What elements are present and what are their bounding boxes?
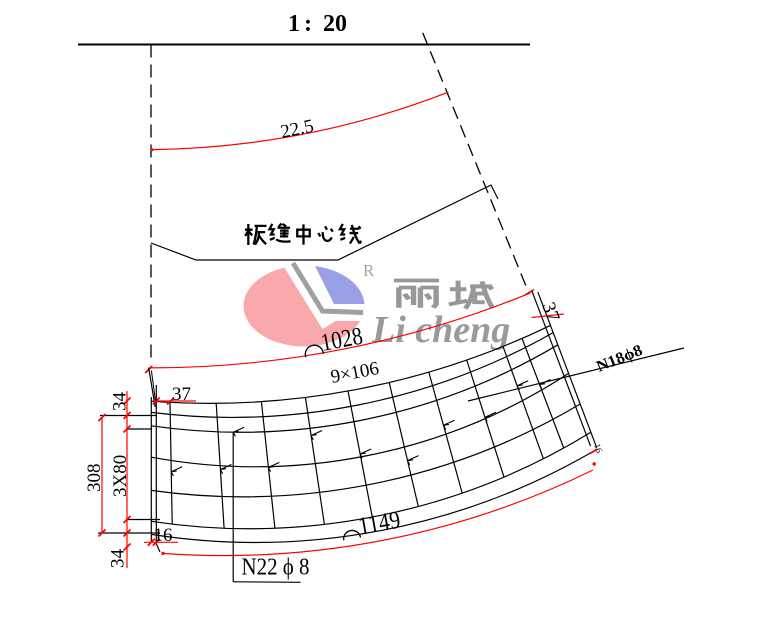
svg-text:Li cheng: Li cheng — [371, 309, 510, 351]
svg-text:308: 308 — [84, 464, 105, 493]
svg-text:16: 16 — [154, 525, 173, 546]
svg-text:R: R — [363, 261, 375, 280]
svg-text:34: 34 — [110, 392, 131, 412]
svg-text:3X80: 3X80 — [110, 455, 131, 497]
svg-text:34: 34 — [108, 549, 129, 569]
svg-text:37: 37 — [172, 384, 191, 405]
svg-text:N22 ϕ 8: N22 ϕ 8 — [242, 555, 310, 581]
